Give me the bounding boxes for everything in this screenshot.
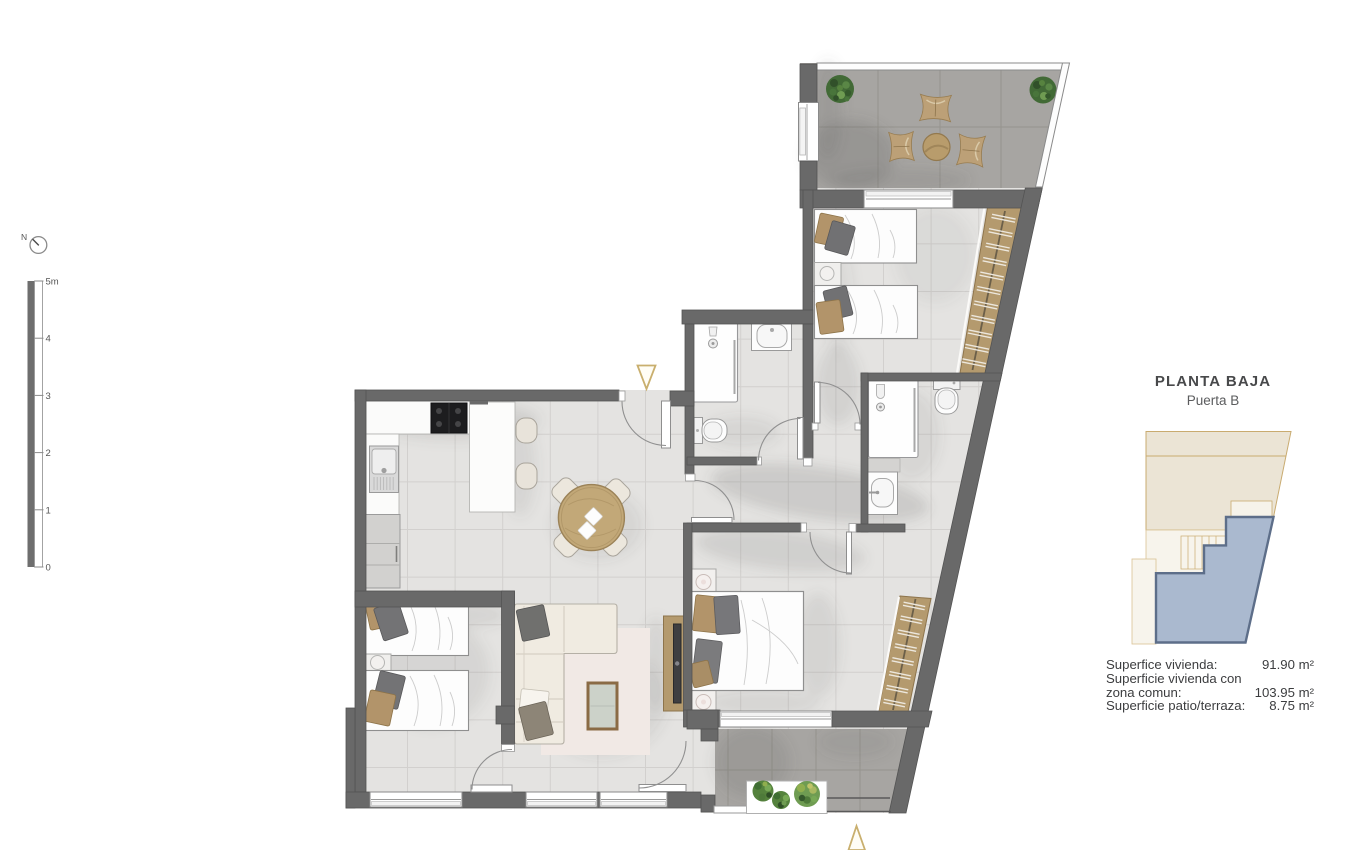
svg-text:5m: 5m xyxy=(46,277,59,288)
svg-text:2: 2 xyxy=(46,448,51,459)
svg-text:1: 1 xyxy=(46,505,51,516)
svg-text:N: N xyxy=(21,232,27,242)
svg-text:3: 3 xyxy=(46,391,51,402)
svg-text:4: 4 xyxy=(46,334,51,345)
svg-text:0: 0 xyxy=(46,563,51,574)
